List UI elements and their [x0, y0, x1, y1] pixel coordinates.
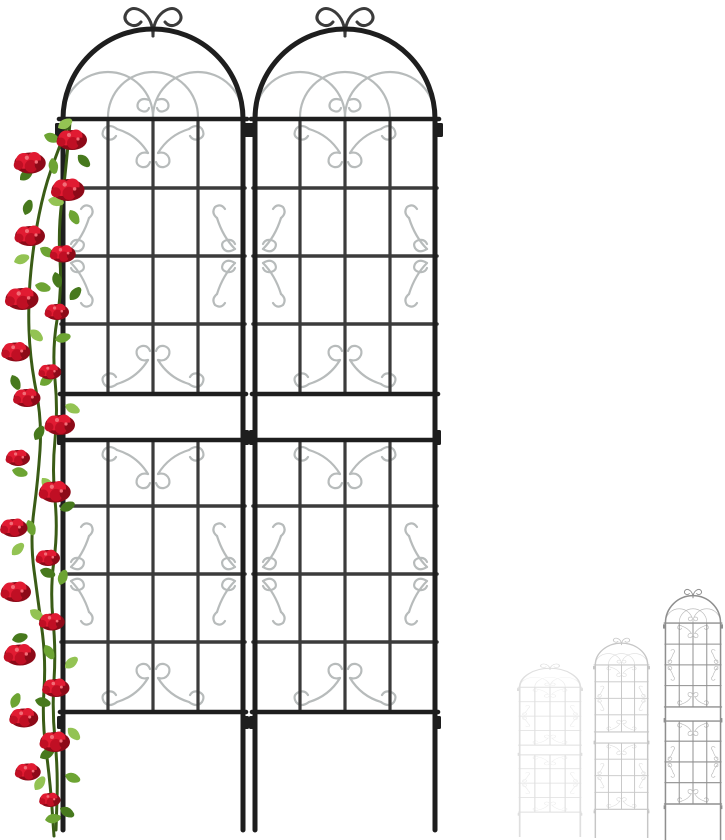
- rose-flower: [6, 450, 30, 466]
- rose-leaf: [34, 695, 52, 708]
- rose-vine: [0, 116, 93, 836]
- rose-leaf: [11, 631, 29, 644]
- rose-flower: [5, 287, 39, 310]
- rose-flower: [0, 519, 27, 537]
- size-variant-large: [663, 589, 723, 840]
- rose-leaf: [66, 285, 84, 303]
- rose-flower: [1, 582, 32, 603]
- size-variant-medium: [593, 638, 650, 838]
- rose-flower: [9, 708, 38, 727]
- rose-leaf: [12, 252, 30, 266]
- rose-leaf: [63, 771, 81, 785]
- rose-flower: [15, 226, 46, 247]
- rose-leaf: [9, 540, 27, 558]
- rose-flower: [39, 481, 71, 503]
- size-variant-trellises: [517, 589, 723, 840]
- rose-leaf: [75, 152, 93, 170]
- product-photo: [0, 0, 725, 840]
- rose-flower: [45, 415, 76, 436]
- rose-flower: [14, 152, 46, 174]
- rose-leaf: [21, 198, 35, 216]
- rose-leaf: [11, 465, 29, 478]
- rose-flower: [38, 364, 61, 379]
- rose-leaf: [66, 208, 82, 227]
- rose-flower: [15, 763, 41, 780]
- trellis-panel-left: [55, 9, 251, 831]
- rose-leaf: [56, 568, 70, 586]
- trellis-panels: [55, 9, 443, 831]
- rose-leaf: [44, 813, 61, 825]
- rose-flower: [1, 342, 30, 361]
- trellis-panel-right: [247, 9, 443, 831]
- rose-leaf: [8, 373, 23, 392]
- rose-leaf: [8, 691, 23, 710]
- product-image: [0, 0, 725, 840]
- rose-leaf: [34, 280, 52, 293]
- size-variant-small: [517, 664, 583, 837]
- rose-leaf: [63, 401, 82, 416]
- rose-flower: [4, 644, 36, 666]
